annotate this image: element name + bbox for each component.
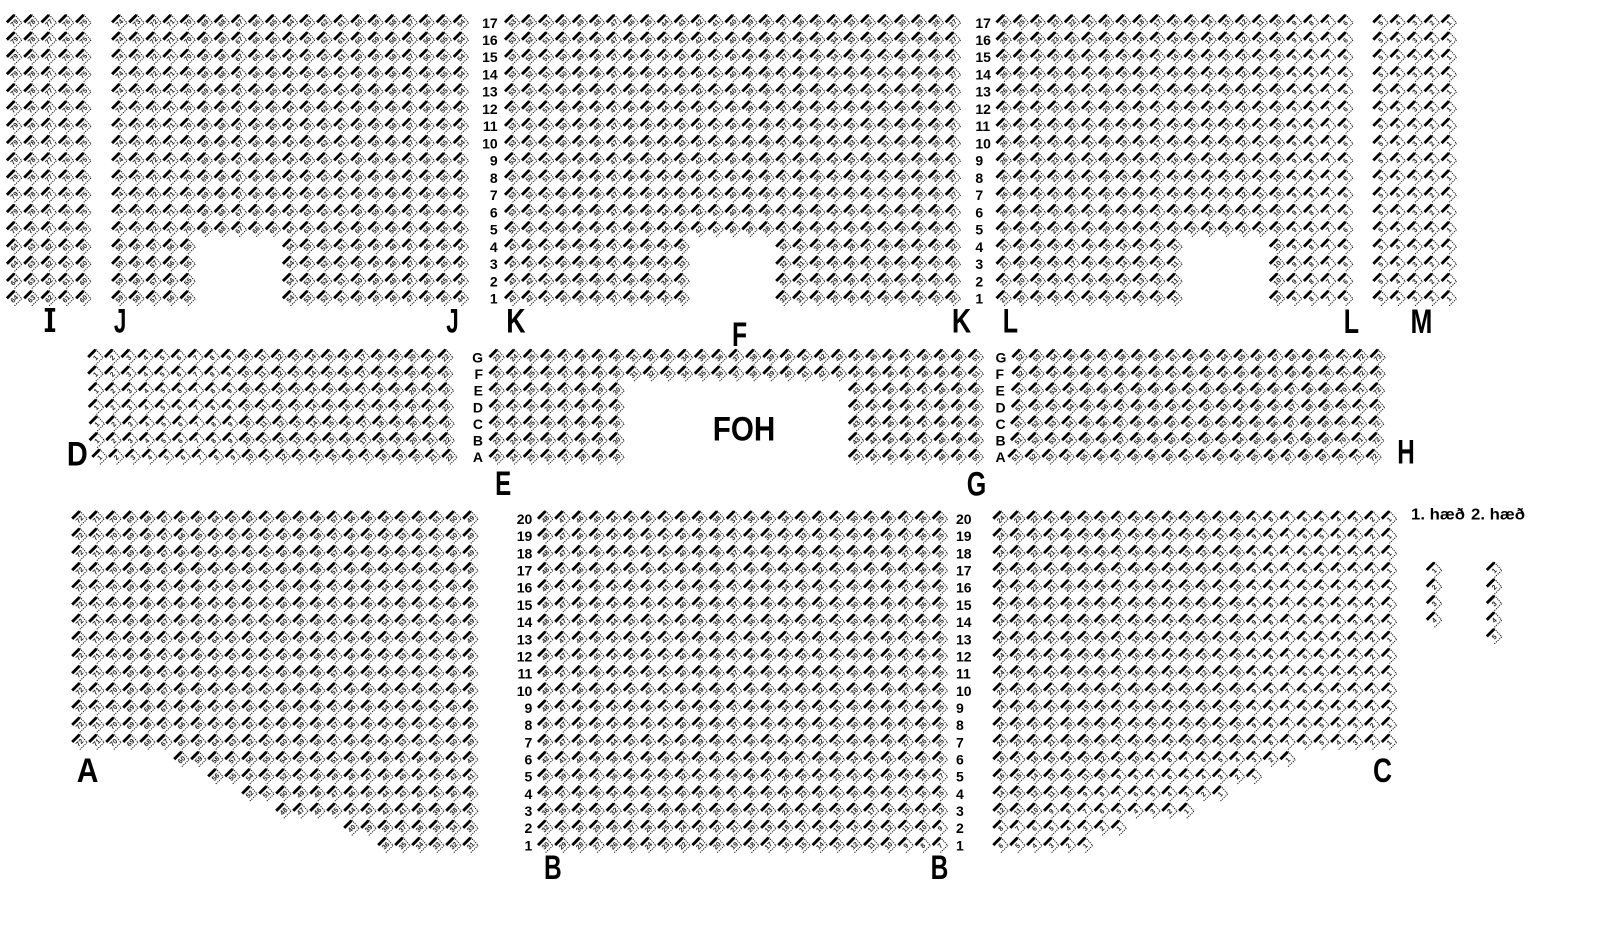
svg-text:1: 1	[525, 837, 533, 853]
svg-text:L: L	[1344, 303, 1359, 341]
svg-text:D: D	[67, 435, 88, 473]
svg-text:9: 9	[956, 700, 964, 716]
svg-text:D: D	[473, 399, 483, 415]
svg-text:14: 14	[975, 67, 991, 83]
svg-text:K: K	[506, 303, 526, 341]
svg-text:4: 4	[490, 239, 498, 255]
svg-text:4: 4	[956, 786, 964, 802]
svg-text:B: B	[544, 849, 562, 887]
svg-text:M: M	[1410, 303, 1432, 341]
svg-text:12: 12	[975, 101, 991, 117]
svg-text:13: 13	[975, 84, 991, 100]
svg-text:5: 5	[975, 222, 983, 238]
svg-text:6: 6	[975, 204, 983, 220]
svg-text:1. hæð: 1. hæð	[1411, 507, 1465, 524]
svg-text:F: F	[996, 366, 1005, 382]
svg-text:20: 20	[956, 511, 972, 527]
svg-text:1: 1	[975, 291, 983, 307]
svg-text:E: E	[996, 383, 1005, 399]
svg-text:D: D	[996, 399, 1006, 415]
svg-text:G: G	[967, 466, 987, 504]
svg-text:16: 16	[975, 32, 991, 48]
svg-text:7: 7	[490, 187, 498, 203]
svg-text:B: B	[996, 433, 1006, 449]
svg-text:E: E	[474, 383, 483, 399]
svg-text:9: 9	[525, 700, 533, 716]
svg-text:2. hæð: 2. hæð	[1471, 507, 1525, 524]
svg-text:J: J	[446, 303, 459, 341]
svg-text:13: 13	[956, 631, 972, 647]
svg-text:9: 9	[975, 153, 983, 169]
svg-text:C: C	[1373, 752, 1392, 790]
svg-text:E: E	[495, 465, 511, 503]
svg-text:10: 10	[482, 135, 498, 151]
svg-text:16: 16	[517, 580, 533, 596]
svg-text:13: 13	[517, 631, 533, 647]
svg-text:12: 12	[482, 101, 498, 117]
svg-text:J: J	[114, 303, 127, 341]
svg-text:13: 13	[482, 84, 498, 100]
svg-text:5: 5	[525, 769, 533, 785]
svg-text:15: 15	[956, 597, 972, 613]
svg-text:2: 2	[490, 273, 498, 289]
svg-text:15: 15	[517, 597, 533, 613]
svg-text:10: 10	[517, 683, 533, 699]
svg-text:3: 3	[956, 803, 964, 819]
svg-text:20: 20	[517, 511, 533, 527]
svg-text:19: 19	[956, 528, 972, 544]
svg-text:A: A	[473, 449, 483, 465]
svg-text:H: H	[1397, 434, 1415, 472]
svg-text:17: 17	[975, 15, 991, 31]
svg-text:6: 6	[490, 204, 498, 220]
svg-text:5: 5	[490, 222, 498, 238]
svg-text:7: 7	[975, 187, 983, 203]
svg-text:9: 9	[490, 153, 498, 169]
svg-text:A: A	[996, 449, 1006, 465]
svg-text:11: 11	[975, 118, 990, 134]
svg-text:14: 14	[956, 614, 972, 630]
svg-text:17: 17	[482, 15, 498, 31]
svg-text:10: 10	[975, 135, 991, 151]
svg-text:G: G	[996, 349, 1007, 365]
svg-text:18: 18	[517, 545, 533, 561]
svg-text:FOH: FOH	[713, 411, 776, 449]
svg-text:12: 12	[956, 648, 972, 664]
svg-text:14: 14	[517, 614, 533, 630]
svg-text:10: 10	[956, 683, 972, 699]
svg-text:8: 8	[525, 717, 533, 733]
svg-text:3: 3	[490, 256, 498, 272]
svg-text:15: 15	[482, 49, 498, 65]
svg-text:4: 4	[975, 239, 983, 255]
svg-text:L: L	[1003, 303, 1018, 341]
svg-text:1: 1	[490, 291, 498, 307]
svg-text:2: 2	[956, 820, 964, 836]
svg-text:8: 8	[975, 170, 983, 186]
svg-text:1: 1	[956, 837, 964, 853]
svg-text:19: 19	[517, 528, 533, 544]
svg-text:17: 17	[956, 563, 972, 579]
svg-text:7: 7	[956, 734, 964, 750]
svg-text:C: C	[473, 416, 483, 432]
svg-text:2: 2	[525, 820, 533, 836]
svg-text:18: 18	[956, 545, 972, 561]
svg-text:14: 14	[482, 67, 498, 83]
svg-text:2: 2	[975, 273, 983, 289]
svg-text:12: 12	[517, 648, 533, 664]
svg-text:K: K	[952, 303, 972, 341]
svg-text:5: 5	[956, 769, 964, 785]
svg-text:16: 16	[482, 32, 498, 48]
svg-text:C: C	[996, 416, 1006, 432]
svg-text:11: 11	[517, 666, 532, 682]
svg-text:11: 11	[483, 118, 498, 134]
svg-text:F: F	[732, 316, 747, 354]
svg-text:6: 6	[956, 752, 964, 768]
svg-text:F: F	[474, 366, 483, 382]
svg-text:B: B	[931, 849, 949, 887]
svg-text:6: 6	[525, 752, 533, 768]
svg-text:7: 7	[525, 734, 533, 750]
svg-text:17: 17	[517, 563, 533, 579]
svg-text:16: 16	[956, 580, 972, 596]
svg-text:4: 4	[525, 786, 533, 802]
svg-text:8: 8	[956, 717, 964, 733]
svg-text:G: G	[472, 349, 483, 365]
svg-text:15: 15	[975, 49, 991, 65]
svg-text:B: B	[473, 433, 483, 449]
svg-text:3: 3	[975, 256, 983, 272]
svg-text:3: 3	[525, 803, 533, 819]
svg-text:A: A	[77, 752, 99, 790]
svg-text:8: 8	[490, 170, 498, 186]
svg-text:11: 11	[956, 666, 971, 682]
